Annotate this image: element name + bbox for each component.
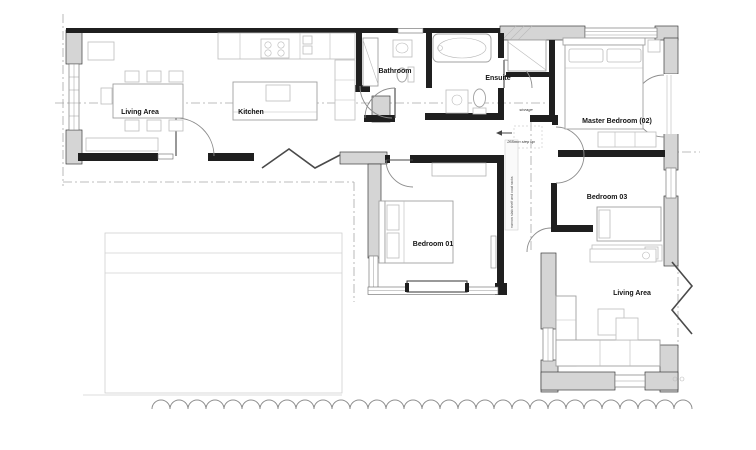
wardrobe [598,132,656,147]
bedroom-03-door [556,155,584,183]
window-bench [86,138,158,151]
room-label-living-west: Living Area [121,109,159,116]
master-bed-headboard [563,38,645,45]
room-label-living-east: Living Area [613,290,651,297]
kitchen-sink [303,36,312,44]
room-label-ensuite: Ensuite [485,75,510,82]
media-unit [590,249,656,262]
nightstand [648,40,660,52]
closet-recess [432,163,486,176]
hedge-line [152,400,692,409]
room-label-bedroom-01: Bedroom 01 [413,241,454,248]
vanity [446,90,468,113]
tall-units [335,60,355,120]
radiator [491,236,496,268]
step-arrow [496,130,512,135]
step-note: 265mm step up [506,139,535,144]
side-table [616,318,638,340]
sofa [556,340,660,366]
cabinet [88,42,114,60]
storage-note: storage [519,107,533,112]
bedroom-01-door [386,160,413,187]
bed-01-headboard [379,201,385,263]
floor-plan-canvas: Living Area Kitchen Bathroom Ensuite Mas… [0,0,756,450]
hob [261,39,289,58]
room-label-kitchen: Kitchen [238,109,264,116]
shelf-note: narrow slab shelf and coat racks [510,176,514,228]
floor-plan-drawing: Living Area Kitchen Bathroom Ensuite Mas… [0,0,756,450]
toilet-ensuite [473,108,486,114]
room-label-bedroom-03: Bedroom 03 [587,194,628,201]
dining-chair [125,71,139,82]
room-label-bathroom: Bathroom [378,68,411,75]
patio [83,233,342,395]
room-label-master-bedroom: Master Bedroom (02) [582,118,652,125]
shower-master [508,40,546,71]
